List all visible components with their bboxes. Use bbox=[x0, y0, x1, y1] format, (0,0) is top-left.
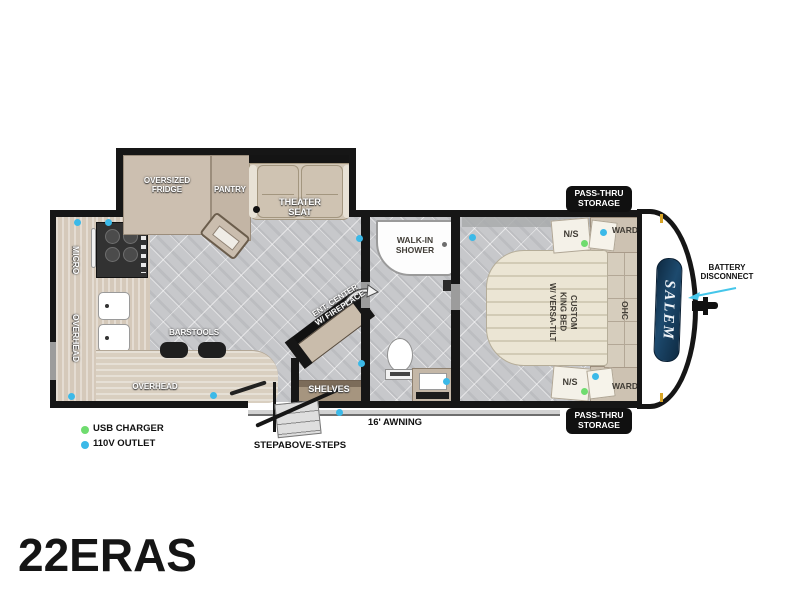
salem-logo-text: SALEM bbox=[658, 279, 677, 340]
usb-charger-dot bbox=[581, 388, 588, 395]
110v-outlet-dot bbox=[74, 219, 81, 226]
label-overhead-wall: OVERHEAD bbox=[66, 294, 86, 382]
rear-window bbox=[50, 342, 56, 380]
pass-thru-storage-rear: PASS-THRU STORAGE bbox=[566, 186, 632, 212]
burner bbox=[123, 247, 138, 262]
110v-outlet-dot bbox=[358, 360, 365, 367]
110v-outlet-dot bbox=[443, 378, 450, 385]
faucet bbox=[105, 304, 109, 308]
battery-disconnect-arrow bbox=[686, 284, 740, 302]
label-pantry: PANTRY bbox=[206, 186, 254, 195]
theater-recline-dot bbox=[253, 206, 260, 213]
shelves-stub-wall bbox=[291, 358, 299, 404]
legend-110v-label: 110V OUTLET bbox=[93, 439, 183, 450]
wall-bottom-rear bbox=[50, 401, 248, 408]
legend-110v-dot bbox=[81, 441, 89, 449]
cushion-seam bbox=[306, 194, 338, 195]
toilet-hinge bbox=[390, 372, 410, 376]
label-micro: MICRO bbox=[66, 228, 86, 292]
label-awning: 16' AWNING bbox=[352, 418, 438, 429]
model-number: 22ERAS bbox=[18, 530, 238, 582]
label-theater-seat: THEATER SEAT bbox=[268, 197, 332, 217]
label-battery-disconnect: BATTERY DISCONNECT bbox=[694, 264, 760, 282]
label-overhead-counter: OVERHEAD bbox=[120, 383, 190, 392]
pass-thru-storage-front: PASS-THRU STORAGE bbox=[566, 408, 632, 434]
slideout-wall-top bbox=[116, 148, 356, 155]
floorplan-canvas: SALEM PASS-THRU STORAGE PASS-THRU STORAG… bbox=[0, 0, 800, 600]
kitchen-peninsula-counter bbox=[96, 350, 278, 403]
label-ns-front: N/S bbox=[555, 377, 585, 387]
label-shelves: SHELVES bbox=[296, 384, 362, 394]
label-stepabove-steps: STEPABOVE-STEPS bbox=[250, 441, 350, 452]
110v-outlet-dot bbox=[592, 373, 599, 380]
wall-top-rear bbox=[50, 210, 122, 217]
110v-outlet-dot bbox=[469, 234, 476, 241]
slideout-wall-right bbox=[349, 148, 356, 217]
vanity-front-bar bbox=[416, 392, 449, 399]
slideout-wall-left bbox=[116, 148, 123, 217]
oversized-fridge bbox=[123, 155, 211, 235]
bath-wall-left bbox=[361, 214, 370, 404]
label-oversized-fridge: OVERSIZED FRIDGE bbox=[124, 177, 210, 195]
sink-left bbox=[98, 292, 130, 320]
110v-outlet-dot bbox=[336, 409, 343, 416]
legend-usb-dot bbox=[81, 426, 89, 434]
salem-logo-badge: SALEM bbox=[653, 258, 683, 363]
oven-handle bbox=[91, 228, 96, 268]
110v-outlet-dot bbox=[356, 235, 363, 242]
label-ns-rear: N/S bbox=[556, 229, 586, 239]
legend-usb-label: USB CHARGER bbox=[93, 424, 183, 435]
burner bbox=[105, 229, 120, 244]
hitch-coupler bbox=[707, 302, 718, 309]
usb-charger-dot bbox=[581, 240, 588, 247]
faucet bbox=[105, 336, 109, 340]
label-ohc: OHC bbox=[617, 294, 632, 326]
label-barstools: BARSTOOLS bbox=[158, 329, 230, 338]
cushion-seam bbox=[262, 194, 294, 195]
110v-outlet-dot bbox=[600, 229, 607, 236]
burner bbox=[105, 247, 120, 262]
clearance-light-top bbox=[660, 214, 663, 223]
door-panel bbox=[212, 225, 240, 250]
label-walk-in-shower: WALK-IN SHOWER bbox=[380, 236, 450, 255]
bath-door-right bbox=[451, 284, 460, 310]
bath-vanity bbox=[412, 368, 452, 402]
110v-outlet-dot bbox=[105, 219, 112, 226]
label-king-bed: CUSTOM KING BED W/ VERSA-TILT bbox=[538, 260, 578, 364]
110v-outlet-dot bbox=[210, 392, 217, 399]
clearance-light-bottom bbox=[660, 393, 663, 402]
sink-right bbox=[98, 324, 130, 352]
wall-bottom-front bbox=[298, 401, 648, 408]
toilet-bowl bbox=[387, 338, 413, 372]
barstool bbox=[198, 342, 226, 358]
110v-outlet-dot bbox=[68, 393, 75, 400]
barstool bbox=[160, 342, 188, 358]
